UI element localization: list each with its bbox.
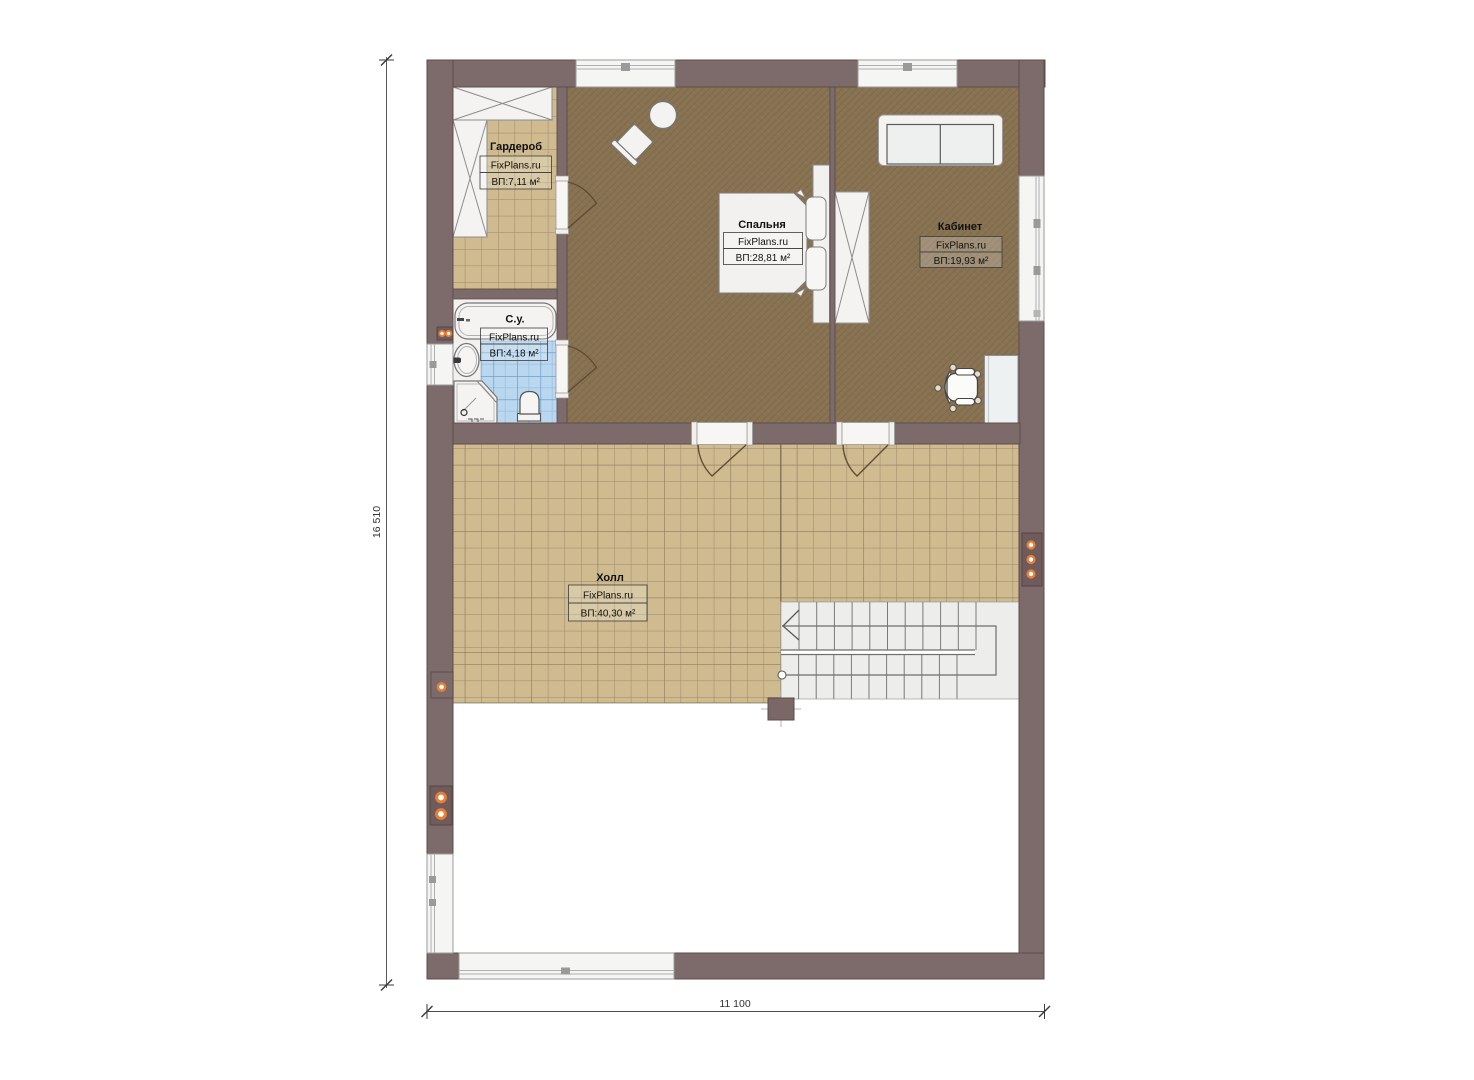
svg-text:11 100: 11 100	[719, 998, 750, 1010]
svg-text:FixPlans.ru: FixPlans.ru	[583, 591, 633, 602]
svg-text:16 510: 16 510	[371, 506, 383, 538]
svg-text:FixPlans.ru: FixPlans.ru	[491, 161, 541, 172]
svg-text:Кабинет: Кабинет	[938, 221, 983, 233]
svg-text:ВП:19,93 м²: ВП:19,93 м²	[934, 256, 989, 267]
svg-text:Гардероб: Гардероб	[490, 141, 542, 153]
svg-text:ВП:4,18 м²: ВП:4,18 м²	[489, 349, 539, 360]
svg-text:ВП:28,81 м²: ВП:28,81 м²	[736, 253, 791, 264]
svg-text:ВП:40,30 м²: ВП:40,30 м²	[581, 609, 636, 620]
svg-text:С.у.: С.у.	[505, 314, 524, 326]
svg-text:Спальня: Спальня	[738, 219, 786, 231]
svg-text:FixPlans.ru: FixPlans.ru	[489, 333, 539, 344]
svg-text:ВП:7,11 м²: ВП:7,11 м²	[492, 177, 541, 188]
svg-text:Холл: Холл	[596, 572, 624, 584]
svg-text:FixPlans.ru: FixPlans.ru	[936, 241, 986, 252]
svg-text:FixPlans.ru: FixPlans.ru	[738, 237, 788, 248]
